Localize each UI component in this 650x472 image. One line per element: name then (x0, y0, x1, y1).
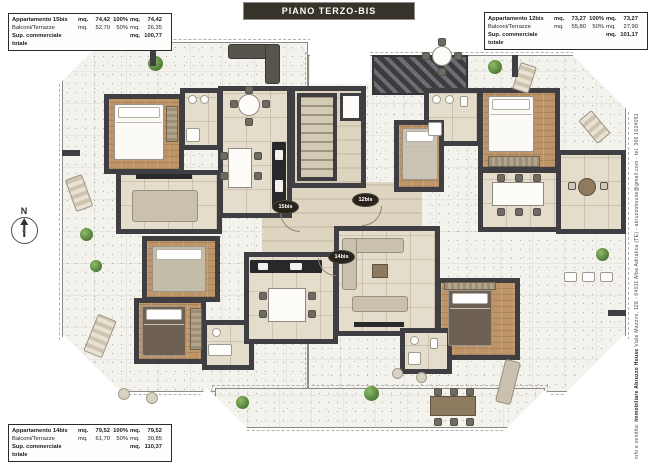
coffee-table (578, 178, 596, 196)
total-label: Sup. commerciale totale (12, 32, 76, 48)
chair (308, 292, 316, 300)
chair (220, 152, 228, 160)
unit-label: mq. (552, 15, 564, 23)
outdoor-table (238, 94, 260, 116)
plant (364, 386, 379, 401)
chair (259, 292, 267, 300)
sink (188, 95, 197, 104)
dining-table (228, 148, 252, 188)
plant (488, 60, 502, 74)
chair (254, 152, 262, 160)
bed (152, 246, 206, 292)
unit-badge-14bis: 14bis (328, 250, 355, 264)
wardrobe (166, 106, 178, 142)
percent-value (110, 443, 128, 459)
chair (422, 52, 430, 60)
chair (254, 172, 262, 180)
unit-label: mq. (604, 31, 616, 47)
percent-value: 50% (586, 23, 604, 31)
chair (245, 86, 253, 94)
pouf (118, 388, 130, 400)
sink (200, 95, 209, 104)
percent-value: 100% (586, 15, 604, 23)
area-value: 27,90 (616, 23, 638, 31)
pouf (416, 372, 427, 383)
staircase (297, 93, 337, 181)
unit-badge-12bis: 12bis (352, 193, 379, 207)
tv-cabinet (136, 174, 192, 179)
unit-badge-label: 14bis (334, 254, 348, 260)
chair (230, 100, 238, 108)
total-label: Sup. commerciale totale (488, 31, 552, 47)
shower (428, 122, 442, 136)
plant (596, 248, 609, 261)
dining-table (268, 288, 306, 322)
agency-name: Immobiliare Abruzzo House (634, 349, 640, 422)
chair (438, 38, 446, 46)
shower (408, 352, 421, 365)
kitchen-sink (275, 150, 283, 160)
pouf (146, 392, 158, 404)
info-row: Appartamento 12bis mq. 73,27 100% mq. 73… (488, 15, 644, 23)
sink (445, 95, 454, 104)
chair (438, 68, 446, 76)
area-value: 52,70 (88, 24, 110, 32)
sink (432, 95, 441, 104)
area-value: 79,52 (140, 427, 162, 435)
sink (410, 336, 419, 345)
outdoor-table (432, 46, 452, 66)
chair (245, 118, 253, 126)
wardrobe (488, 156, 540, 167)
total-value: 101,17 (616, 31, 638, 47)
outdoor-sofa (265, 44, 280, 84)
wardrobe (444, 282, 496, 290)
unit-label (76, 32, 88, 48)
area-value: 55,80 (564, 23, 586, 31)
unit-label: mq. (128, 24, 140, 32)
terrace-bottom (215, 388, 545, 428)
area-value: 73,27 (564, 15, 586, 23)
pouf (392, 368, 403, 379)
balconies-label: Balconi/Terrazze (12, 24, 76, 32)
percent-value (586, 31, 604, 47)
contact-strip: info e vendita: Immobiliare Abruzzo Hous… (634, 55, 646, 459)
cooktop (275, 180, 283, 192)
chair (434, 388, 442, 396)
chair (568, 182, 576, 190)
unit-label: mq. (76, 435, 88, 443)
chair (533, 174, 541, 182)
area-value: 74,42 (140, 16, 162, 24)
elevator (340, 93, 362, 121)
bed (488, 96, 534, 152)
bed (114, 104, 164, 160)
sofa (352, 296, 408, 312)
wall-stub (608, 310, 626, 316)
percent-value: 100% (110, 16, 128, 24)
bed (142, 306, 186, 356)
outdoor-dining-table (430, 396, 476, 416)
plan-title-bar: PIANO TERZO-BIS (243, 2, 415, 20)
chair (454, 52, 462, 60)
bed (448, 290, 492, 346)
chair (466, 388, 474, 396)
info-box-12bis: Appartamento 12bis mq. 73,27 100% mq. 73… (484, 12, 648, 50)
area-value (564, 31, 586, 47)
info-row: Appartamento 14bis mq. 79,52 100% mq. 79… (12, 427, 168, 435)
info-row: Balconi/Terrazze mq. 61,70 50% mq. 30,85 (12, 435, 168, 443)
area-value (88, 32, 110, 48)
wall-stub (62, 150, 80, 156)
ac-unit (582, 272, 595, 282)
balconies-label: Balconi/Terrazze (12, 435, 76, 443)
info-row: Balconi/Terrazze mq. 52,70 50% mq. 26,35 (12, 24, 168, 32)
ac-unit (600, 272, 613, 282)
total-value: 110,37 (140, 443, 162, 459)
chair (497, 174, 505, 182)
apartment-name: Appartamento 12bis (488, 15, 552, 23)
cooktop (290, 263, 302, 270)
unit-label: mq. (604, 23, 616, 31)
unit-label: mq. (76, 427, 88, 435)
chair (600, 182, 608, 190)
info-row: Appartamento 15bis mq. 74,42 100% mq. 74… (12, 16, 168, 24)
unit-label (552, 31, 564, 47)
contact-details: Viale Mazzini, 128 - 64011 Alba Adriatic… (634, 113, 640, 348)
area-value: 73,27 (616, 15, 638, 23)
plant (236, 396, 249, 409)
chair (515, 174, 523, 182)
chair (450, 418, 458, 426)
info-row-total: Sup. commerciale totale mq. 101,17 (488, 31, 644, 47)
sofa (132, 190, 198, 222)
chair (515, 208, 523, 216)
percent-value: 100% (110, 427, 128, 435)
area-value: 26,35 (140, 24, 162, 32)
area-value: 79,52 (88, 427, 110, 435)
wardrobe (190, 308, 202, 350)
chair (533, 208, 541, 216)
unit-badge-label: 15bis (278, 204, 292, 210)
toilet (430, 338, 438, 349)
shower (186, 128, 200, 142)
chair (262, 100, 270, 108)
floor-plan: 15bis 12bis 14bis (0, 0, 650, 464)
wall-stub (512, 55, 518, 77)
unit-label: mq. (128, 443, 140, 459)
tv-cabinet (354, 322, 404, 327)
chair (497, 208, 505, 216)
chair (466, 418, 474, 426)
chair (450, 388, 458, 396)
unit-label: mq. (76, 16, 88, 24)
unit-badge-15bis: 15bis (272, 200, 299, 214)
info-box-14bis: Appartamento 14bis mq. 79,52 100% mq. 79… (8, 424, 172, 462)
bathtub (208, 344, 232, 356)
chair (434, 418, 442, 426)
plan-title: PIANO TERZO-BIS (282, 6, 377, 16)
plant (80, 228, 93, 241)
dining-table (492, 182, 544, 206)
chair (220, 172, 228, 180)
corner-sofa (342, 238, 357, 290)
info-row-total: Sup. commerciale totale mq. 110,37 (12, 443, 168, 459)
unit-label: mq. (128, 435, 140, 443)
area-value: 74,42 (88, 16, 110, 24)
unit-label: mq. (128, 32, 140, 48)
balconies-label: Balconi/Terrazze (488, 23, 552, 31)
kitchen-sink (258, 263, 268, 270)
unit-label: mq. (128, 427, 140, 435)
compass-circle-icon (11, 217, 38, 244)
compass-center-dot (23, 229, 26, 232)
ac-unit (564, 272, 577, 282)
top-gap (310, 36, 370, 84)
area-value (88, 443, 110, 459)
percent-value: 50% (110, 435, 128, 443)
unit-label: mq. (604, 15, 616, 23)
total-value: 100,77 (140, 32, 162, 48)
unit-label (76, 443, 88, 459)
apartment-name: Appartamento 14bis (12, 427, 76, 435)
percent-value: 50% (110, 24, 128, 32)
total-label: Sup. commerciale totale (12, 443, 76, 459)
plant (90, 260, 102, 272)
info-row-total: Sup. commerciale totale mq. 100,77 (12, 32, 168, 48)
info-box-15bis: Appartamento 15bis mq. 74,42 100% mq. 74… (8, 13, 172, 51)
area-value: 61,70 (88, 435, 110, 443)
unit-label: mq. (76, 24, 88, 32)
north-compass: N (6, 206, 42, 244)
area-value: 30,85 (140, 435, 162, 443)
chair (308, 310, 316, 318)
room-bath2-14bis (400, 328, 452, 374)
unit-label: mq. (128, 16, 140, 24)
toilet (460, 96, 468, 107)
contact-prefix: info e vendita: (634, 422, 640, 459)
info-row: Balconi/Terrazze mq. 55,80 50% mq. 27,90 (488, 23, 644, 31)
sink (212, 328, 221, 337)
apartment-name: Appartamento 15bis (12, 16, 76, 24)
percent-value (110, 32, 128, 48)
coffee-table (372, 264, 388, 278)
unit-label: mq. (552, 23, 564, 31)
chair (259, 310, 267, 318)
unit-badge-label: 12bis (358, 197, 372, 203)
